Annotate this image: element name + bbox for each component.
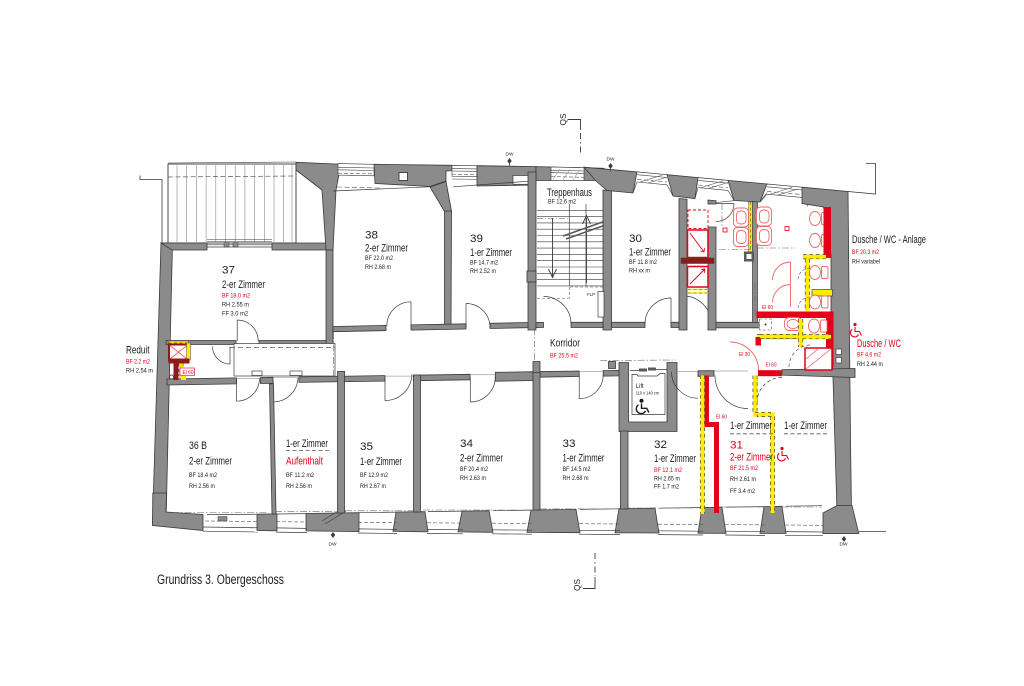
- svg-text:Reduit: Reduit: [126, 345, 150, 357]
- svg-text:1-er Zimmer: 1-er Zimmer: [563, 453, 605, 465]
- svg-text:FF 3.4 m2: FF 3.4 m2: [730, 488, 755, 495]
- svg-text:2-er Zimmer: 2-er Zimmer: [365, 243, 408, 255]
- svg-text:38: 38: [365, 230, 378, 242]
- svg-text:2-er Zimmer: 2-er Zimmer: [189, 456, 232, 468]
- svg-text:FF 1.7 m2: FF 1.7 m2: [654, 484, 679, 491]
- svg-text:QS: QS: [572, 579, 582, 591]
- svg-text:RH 2.61 m: RH 2.61 m: [730, 476, 756, 483]
- svg-text:RH 2.56 m: RH 2.56 m: [286, 483, 312, 490]
- svg-text:37: 37: [222, 265, 235, 277]
- svg-text:1-er Zimmer: 1-er Zimmer: [286, 438, 328, 450]
- svg-text:BF 20.3 m2: BF 20.3 m2: [852, 249, 879, 256]
- svg-text:BF 18.4 m2: BF 18.4 m2: [189, 472, 217, 479]
- svg-text:Lift: Lift: [636, 383, 644, 390]
- svg-text:1-er Zimmer: 1-er Zimmer: [654, 453, 696, 465]
- svg-text:RH 2.68 m: RH 2.68 m: [563, 475, 589, 482]
- svg-text:FLP: FLP: [587, 292, 595, 297]
- svg-text:1-er Zimmer: 1-er Zimmer: [470, 247, 512, 259]
- svg-text:110 x 140 cm: 110 x 140 cm: [636, 391, 660, 396]
- svg-text:El 60: El 60: [183, 370, 194, 376]
- svg-text:Dusche / WC - Anlage: Dusche / WC - Anlage: [852, 234, 926, 246]
- svg-text:2-er Zimmer: 2-er Zimmer: [460, 453, 503, 465]
- svg-text:1-er Zimmer: 1-er Zimmer: [730, 420, 772, 432]
- svg-text:BF 4.6 m2: BF 4.6 m2: [857, 352, 881, 359]
- svg-text:Dusche / WC: Dusche / WC: [857, 338, 901, 350]
- svg-text:BF 14.7 m2: BF 14.7 m2: [470, 260, 498, 267]
- svg-text:DW: DW: [506, 152, 515, 157]
- svg-text:1-er Zimmer: 1-er Zimmer: [784, 420, 827, 432]
- svg-text:BF 12.1 m2: BF 12.1 m2: [654, 467, 682, 474]
- svg-text:31: 31: [730, 440, 743, 452]
- svg-text:RH 2.65 m: RH 2.65 m: [654, 476, 680, 483]
- svg-text:RH 2.63 m: RH 2.63 m: [460, 475, 486, 482]
- svg-text:2-er Zimmer: 2-er Zimmer: [730, 452, 773, 464]
- svg-text:30: 30: [629, 233, 642, 245]
- svg-text:33: 33: [563, 438, 576, 450]
- svg-text:DW: DW: [840, 542, 849, 547]
- svg-text:35: 35: [360, 441, 373, 453]
- svg-text:BF 12.9 m2: BF 12.9 m2: [360, 472, 388, 479]
- svg-text:Grundriss 3. Obergeschoss: Grundriss 3. Obergeschoss: [157, 572, 284, 587]
- svg-text:BF 21.5 m2: BF 21.5 m2: [730, 465, 758, 472]
- svg-text:El 60: El 60: [716, 415, 727, 421]
- svg-text:BF 25.5 m2: BF 25.5 m2: [550, 353, 578, 360]
- svg-text:RH 2.68 m: RH 2.68 m: [365, 264, 391, 271]
- svg-text:32: 32: [654, 439, 667, 451]
- svg-text:BF 20.4 m2: BF 20.4 m2: [460, 466, 488, 473]
- svg-text:El 30: El 30: [739, 352, 750, 358]
- svg-text:RH 2.67 m: RH 2.67 m: [360, 483, 386, 490]
- svg-text:BF 11.2 m2: BF 11.2 m2: [286, 472, 314, 479]
- svg-text:Korridor: Korridor: [550, 338, 580, 350]
- svg-text:2-er Zimmer: 2-er Zimmer: [222, 279, 265, 291]
- svg-text:36 B: 36 B: [189, 440, 207, 452]
- svg-text:RH 2.44 m: RH 2.44 m: [857, 361, 883, 368]
- svg-text:1-er Zimmer: 1-er Zimmer: [360, 456, 402, 468]
- svg-text:El 60: El 60: [766, 363, 777, 369]
- svg-text:FF 3.0 m2: FF 3.0 m2: [222, 311, 248, 318]
- svg-text:Treppenhaus: Treppenhaus: [547, 187, 592, 199]
- svg-text:1-er Zimmer: 1-er Zimmer: [629, 247, 671, 259]
- svg-text:RH 2.55 m: RH 2.55 m: [222, 302, 249, 309]
- svg-text:RH xx m: RH xx m: [629, 268, 650, 275]
- svg-text:DW: DW: [329, 542, 338, 547]
- svg-text:34: 34: [460, 438, 473, 450]
- svg-text:39: 39: [470, 233, 483, 245]
- svg-text:BF 18.0 m2: BF 18.0 m2: [222, 293, 250, 300]
- svg-text:BF 22.0 m2: BF 22.0 m2: [365, 255, 393, 262]
- svg-text:BF 12.6 m2: BF 12.6 m2: [548, 199, 576, 206]
- svg-text:RH 2.56 m: RH 2.56 m: [189, 483, 215, 490]
- svg-text:El 60: El 60: [762, 305, 773, 311]
- svg-text:RH 2.52 m: RH 2.52 m: [470, 268, 496, 275]
- svg-text:RH variabel: RH variabel: [852, 259, 880, 266]
- svg-text:BF 14.5 m2: BF 14.5 m2: [563, 466, 591, 473]
- svg-text:BF 11.8 m2: BF 11.8 m2: [629, 259, 657, 266]
- svg-text:BF 2.2 m2: BF 2.2 m2: [126, 359, 150, 366]
- svg-text:RH 2.54 m: RH 2.54 m: [126, 368, 153, 375]
- svg-text:DW: DW: [607, 157, 616, 162]
- svg-text:Aufenthalt: Aufenthalt: [286, 456, 323, 468]
- svg-text:QS: QS: [558, 113, 568, 125]
